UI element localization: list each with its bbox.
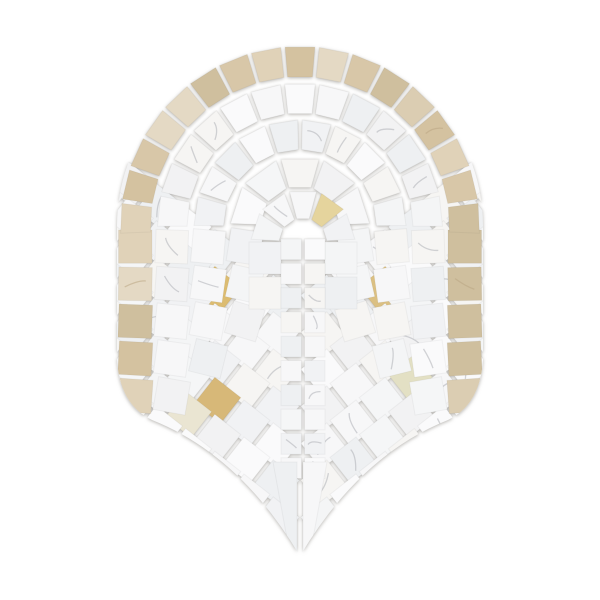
mosaic-product-photo	[0, 0, 600, 600]
mosaic-tiles-group	[48, 47, 551, 555]
mosaic-tile-svg	[0, 0, 600, 600]
